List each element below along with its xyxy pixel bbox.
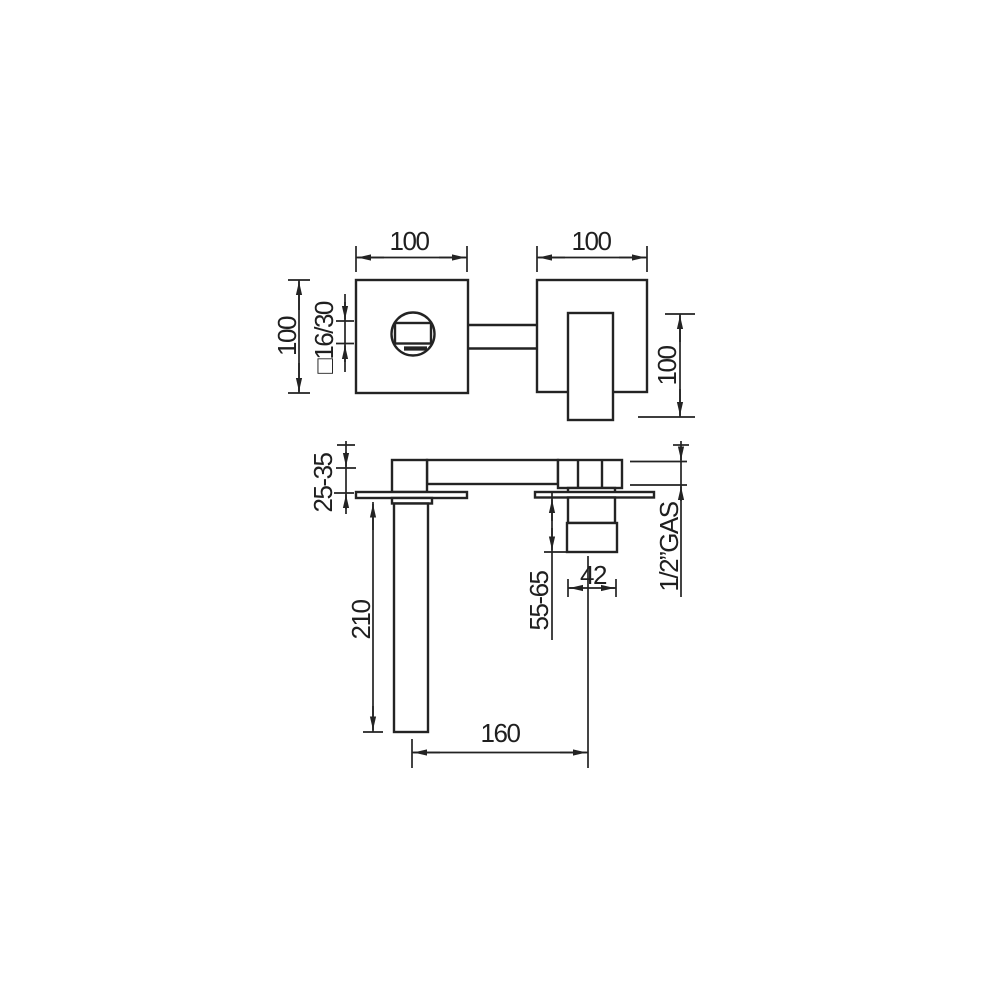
valve-sleeve-side [568, 498, 615, 524]
dim-inlet-connection: 1/2”GAS [630, 441, 689, 597]
dim-spout-outlet: □16/30 [309, 294, 354, 374]
concealed-body-bar [427, 460, 558, 484]
dim-label-spout-plate-height: 100 [272, 316, 302, 356]
lever-hub-side [567, 523, 617, 552]
front-view [356, 280, 647, 420]
dim-label-valve-drop: 55-65 [524, 570, 554, 630]
cartridge-block [558, 460, 622, 488]
dim-wall-depth: 25-35 [308, 441, 356, 514]
faucet-dimension-drawing: 100 100 100 □16/30 [0, 0, 1000, 1000]
dim-label-inlet-connection: 1/2”GAS [654, 501, 684, 591]
dim-spout-plate-height: 100 [272, 280, 310, 393]
lever-handle-front [568, 313, 613, 420]
spout-outlet-square [395, 323, 431, 344]
dim-label-spout-plate-width: 100 [390, 226, 430, 256]
dim-label-handle-width: 42 [580, 560, 607, 590]
dim-valve-drop: 55-65 [524, 492, 566, 640]
spout-tube-side [394, 504, 428, 733]
spout-connection-block [392, 460, 427, 492]
dim-label-wall-depth: 25-35 [308, 452, 338, 512]
side-view [356, 460, 654, 732]
side-view-dimensions: 25-35 210 55-65 42 [308, 441, 689, 768]
dim-valve-plate-width: 100 [537, 226, 647, 272]
dim-label-spout-reach: 160 [481, 718, 521, 748]
technical-drawing-canvas: 100 100 100 □16/30 [0, 0, 1000, 1000]
dim-spout-reach: 160 [412, 556, 588, 768]
dim-label-spout-drop: 210 [346, 600, 376, 640]
dim-label-spout-outlet: □16/30 [309, 301, 339, 374]
dim-spout-drop: 210 [346, 502, 383, 732]
dim-spout-plate-width: 100 [356, 226, 467, 272]
dim-label-valve-plate-width: 100 [572, 226, 612, 256]
dim-handle-width: 42 [568, 560, 616, 597]
dim-label-handle-length: 100 [652, 346, 682, 386]
